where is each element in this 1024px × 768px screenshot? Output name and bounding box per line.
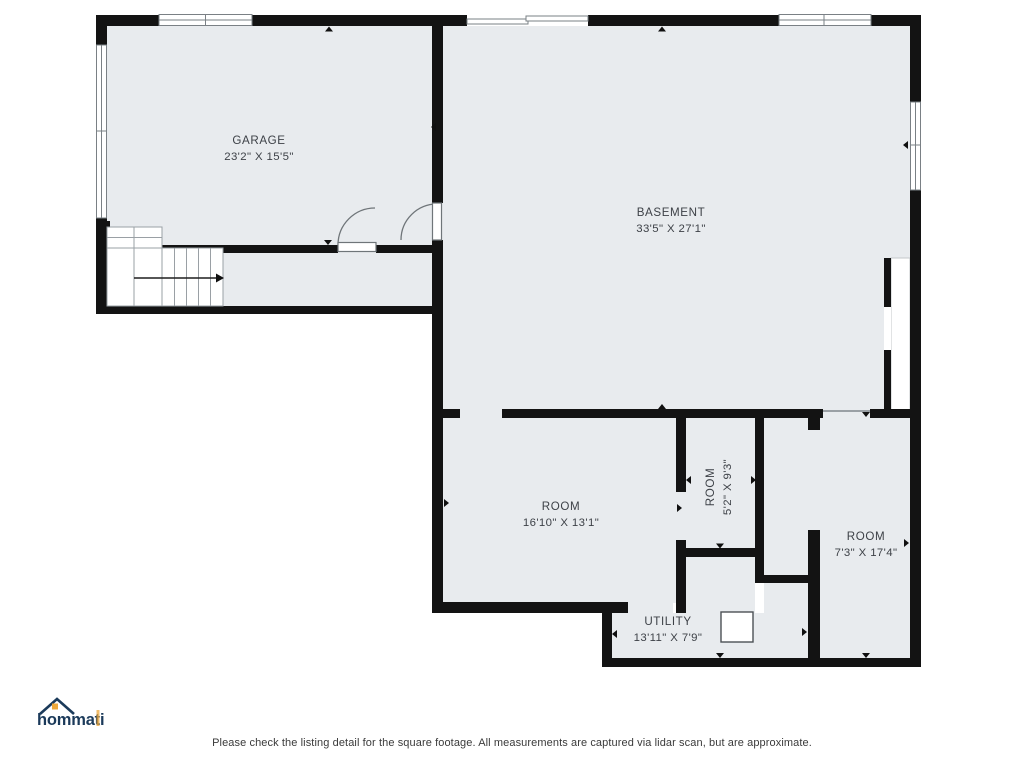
room-right-dims: 7'3" X 17'4" <box>835 547 898 559</box>
window-basement-top <box>779 15 871 26</box>
room-small-floor <box>686 418 755 548</box>
wall-basement-top-a <box>443 15 467 26</box>
notch-gap <box>884 307 891 350</box>
wall-bottom <box>602 658 921 667</box>
wall-utility-west <box>602 602 612 667</box>
wall-basement-bottom-a <box>443 409 460 418</box>
wall-corridor-bottom <box>96 306 443 314</box>
logo-window-icon <box>52 704 58 710</box>
closet-floor <box>764 418 808 575</box>
room-left-entry-gap <box>460 409 502 419</box>
floor-fills <box>107 26 910 658</box>
wall-room-small-east <box>755 409 764 583</box>
wall-basement-bottom-b <box>502 409 823 418</box>
wall-garage-top-b <box>252 15 443 26</box>
window-left-wall <box>97 45 107 218</box>
wall-room-small-bottom <box>676 548 764 557</box>
utility-floor-east <box>764 583 808 613</box>
utility-dims: 13'11" X 7'9" <box>634 632 703 644</box>
notch-void <box>891 258 910 410</box>
room-left-label: ROOM <box>542 500 580 513</box>
window-garage-top <box>159 15 252 26</box>
room-small-dims: 5'2" X 9'3" <box>722 459 734 515</box>
wall-room-right-west-a <box>808 409 820 430</box>
wall-room-small-west-a <box>676 409 686 492</box>
room-small-label: ROOM <box>704 468 717 506</box>
wall-right-top <box>910 15 921 102</box>
wall-divider-bottom <box>432 240 443 613</box>
room-right-label: ROOM <box>847 530 885 543</box>
basement-label: BASEMENT <box>637 206 706 219</box>
room-small-door-gap <box>676 492 686 540</box>
disclaimer-text: Please check the listing detail for the … <box>212 737 812 749</box>
floorplan-page: GARAGE 23'2" X 15'5" BASEMENT 33'5" X 27… <box>0 0 1024 768</box>
wall-garage-bottom-b <box>376 245 443 253</box>
wall-garage-top-a <box>96 15 159 26</box>
utility-label: UTILITY <box>644 615 691 628</box>
wall-notch-a <box>884 258 891 307</box>
wall-basement-bottom-c <box>870 409 921 418</box>
wall-left-bottom <box>96 218 107 313</box>
wall-right-main <box>910 190 921 667</box>
garage-dims: 23'2" X 15'5" <box>224 151 294 163</box>
stair-run <box>107 248 223 306</box>
wall-room-right-west-b <box>808 530 820 667</box>
utility-entry-gap <box>628 602 673 614</box>
wall-divider-top <box>432 15 443 203</box>
logo-text: hommati <box>37 711 104 729</box>
wall-notch-b <box>884 350 891 413</box>
window-right-wall <box>911 102 921 190</box>
sliding-door-basement-top <box>467 16 588 24</box>
wall-basement-top-b <box>588 15 779 26</box>
logo-accent-bar <box>97 710 100 726</box>
closet-opening-gap <box>808 430 820 530</box>
utility-appliance <box>721 612 753 642</box>
wall-room-left-bottom <box>432 602 628 613</box>
garage-label: GARAGE <box>232 134 285 147</box>
basement-dims: 33'5" X 27'1" <box>636 223 706 235</box>
hommati-logo: hommati <box>37 699 104 729</box>
utility-floor-upper <box>686 557 755 613</box>
floorplan-canvas: GARAGE 23'2" X 15'5" BASEMENT 33'5" X 27… <box>0 0 1024 768</box>
room-left-dims: 16'10" X 13'1" <box>523 517 599 529</box>
